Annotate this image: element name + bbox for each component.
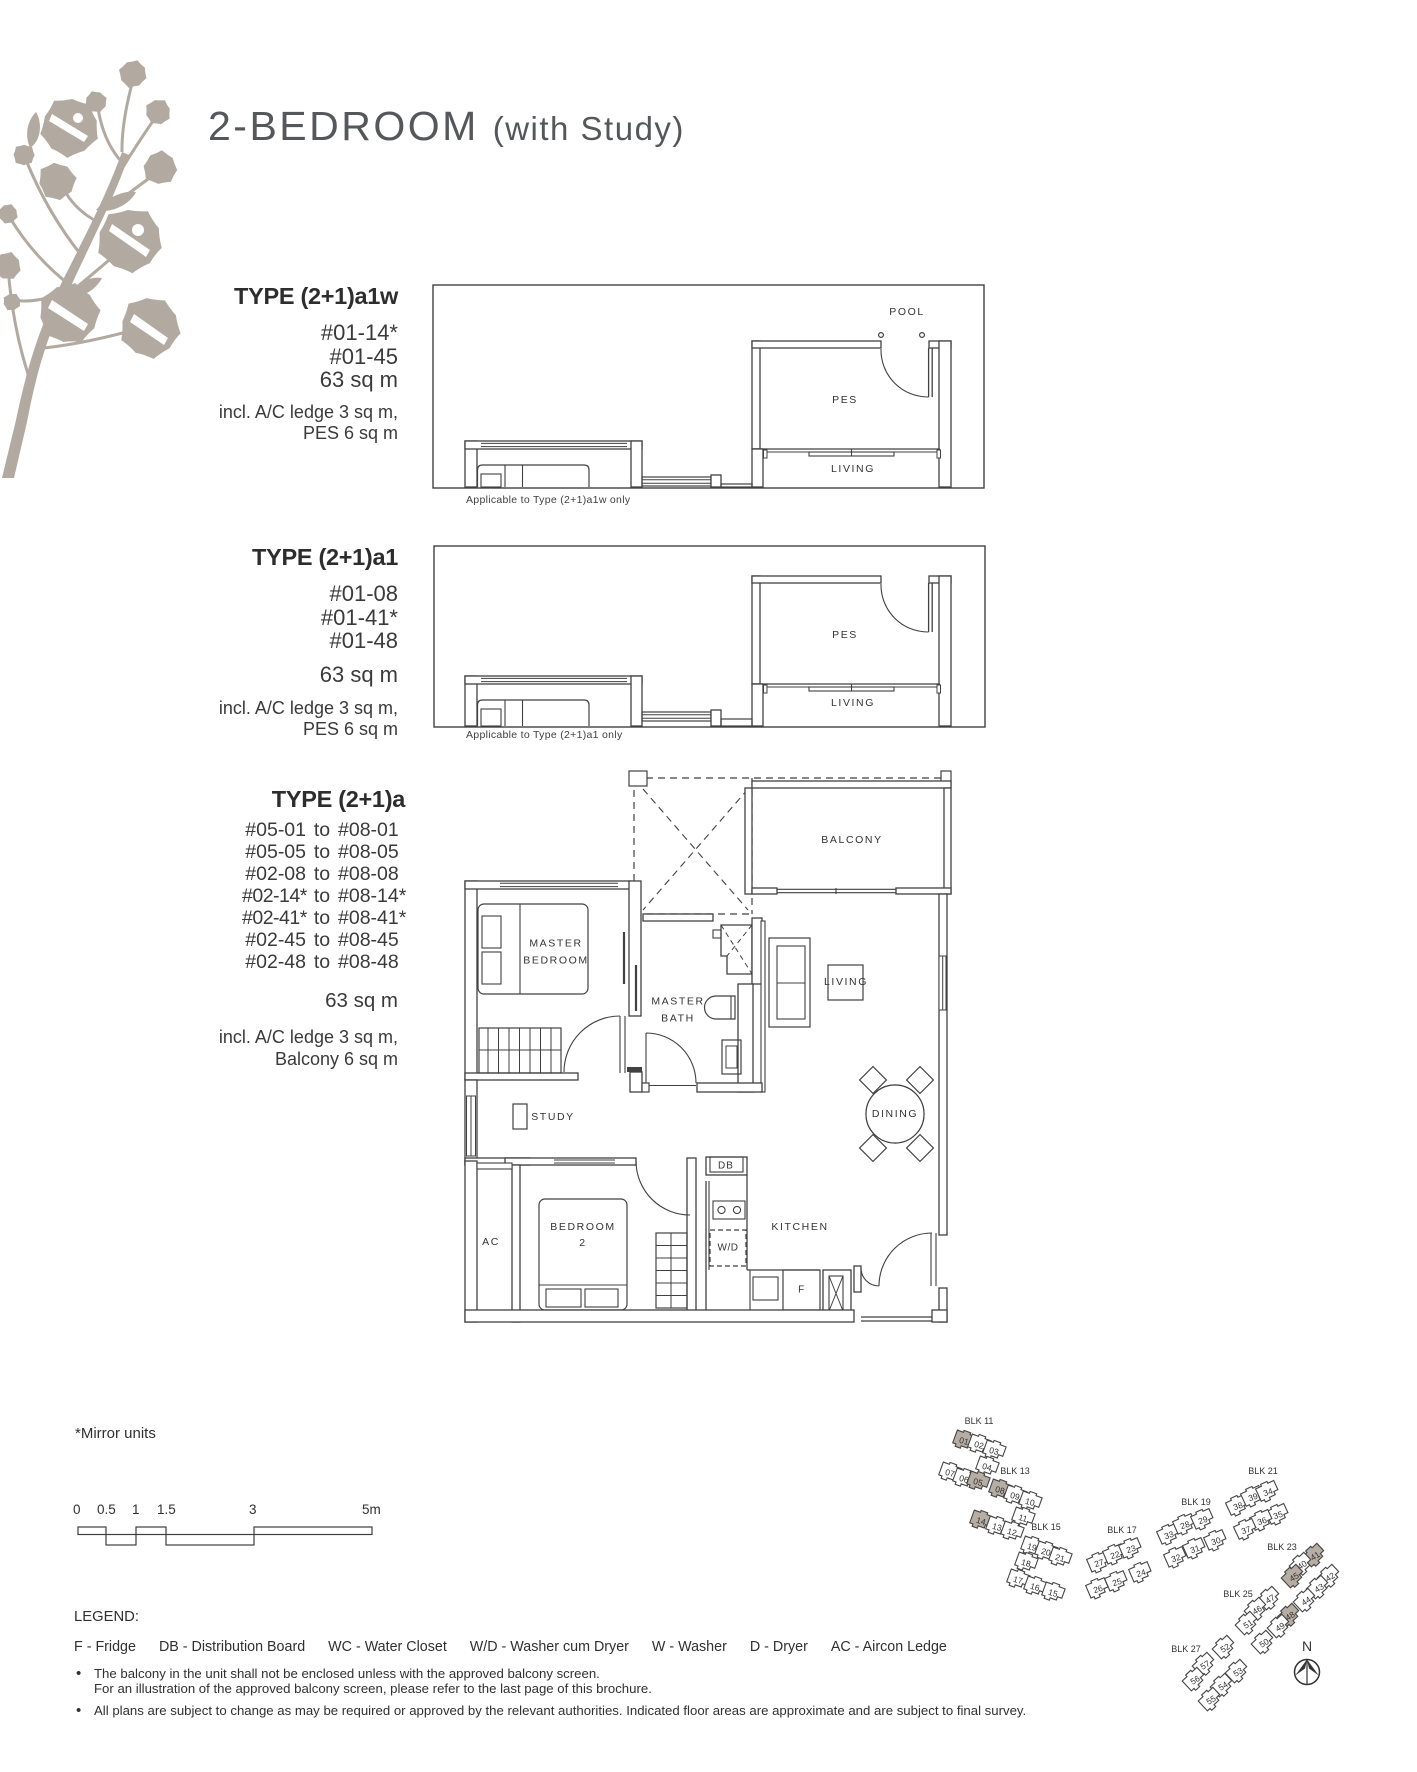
svg-text:BLK 21: BLK 21 [1248, 1466, 1278, 1476]
svg-text:BLK 27: BLK 27 [1171, 1644, 1201, 1654]
svg-text:BLK 19: BLK 19 [1181, 1497, 1211, 1507]
svg-text:BLK 23: BLK 23 [1267, 1542, 1297, 1552]
svg-text:BLK 11: BLK 11 [965, 1416, 994, 1426]
svg-text:BLK 17: BLK 17 [1107, 1525, 1137, 1535]
svg-text:N: N [1302, 1638, 1312, 1654]
svg-text:BLK 13: BLK 13 [1000, 1466, 1030, 1476]
svg-text:BLK 15: BLK 15 [1031, 1522, 1061, 1532]
svg-text:BLK 25: BLK 25 [1223, 1589, 1253, 1599]
